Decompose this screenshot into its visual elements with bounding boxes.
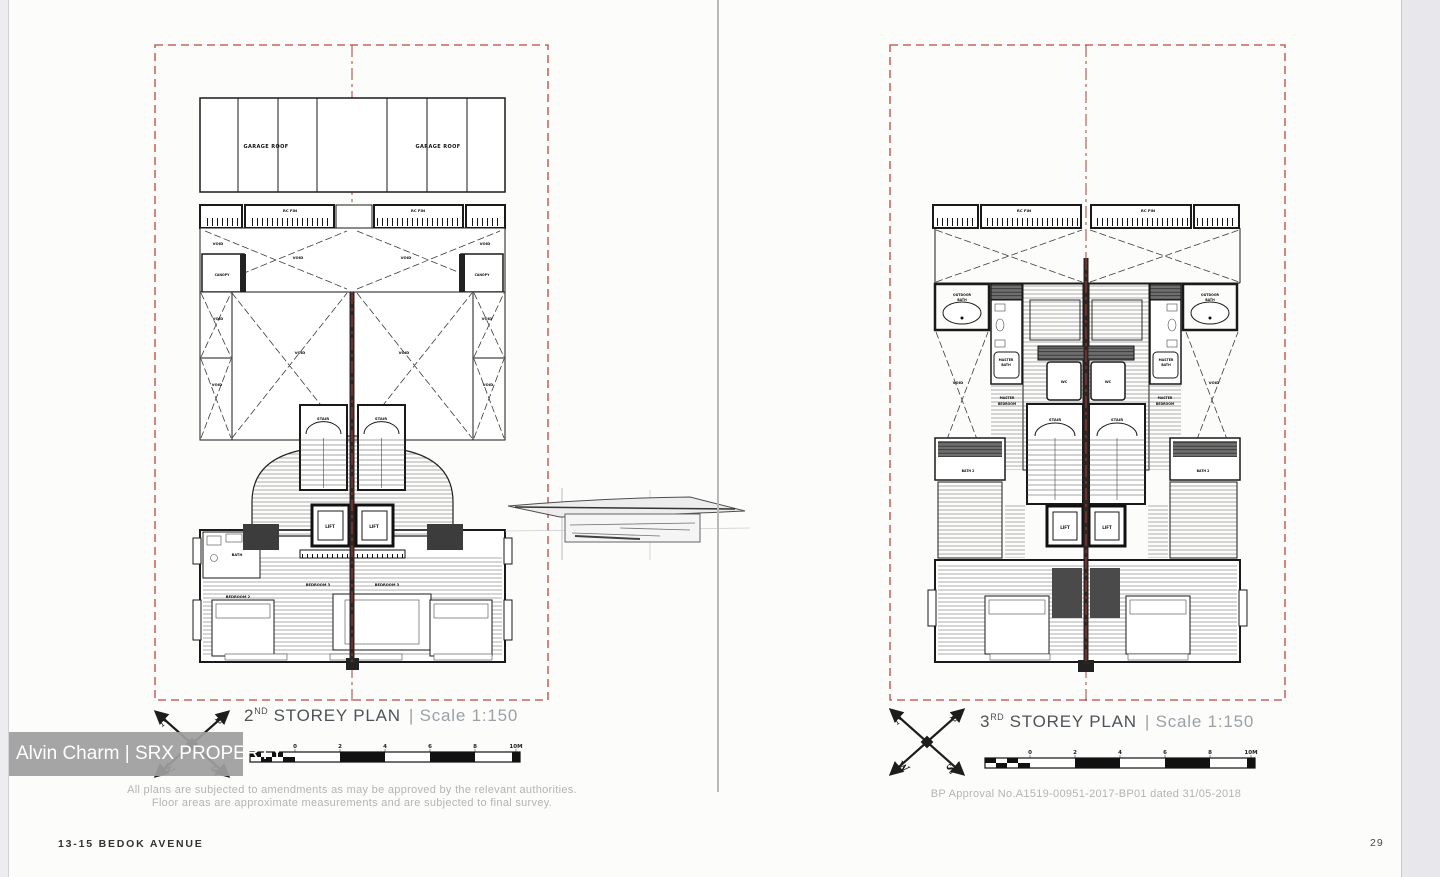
storey-number: 2 [244,706,254,725]
garage-roof-label: GARAGE ROOF [415,144,460,150]
title-separator: | [409,706,414,725]
void-label: VOID [1209,380,1220,385]
rc-fin-strip-left: RC FIN RC FIN [200,205,505,228]
page-fold-divider [717,0,719,792]
bath2-left: BATH 2 [935,438,1005,480]
stair-label: STAIR [1111,417,1123,422]
void-label: VOID [212,382,223,387]
void-label: VOID [293,255,304,260]
garage-roof-block: GARAGE ROOF GARAGE ROOF [200,98,505,192]
upper-void-band-left: VOID VOID VOID VOID CANOPY CANOPY [200,228,505,292]
page-number: 29 [1370,837,1384,849]
bedroom3-label: BEDROOM 3 [306,583,331,587]
bath2-label: BATH 2 [962,469,975,473]
wc-label: WC [1105,380,1112,384]
lift-label: LIFT [1060,525,1070,530]
master-bedroom-label: BEDROOM [998,402,1016,406]
bp-approval-note: BP Approval No.A1519-00951-2017-BP01 dat… [850,788,1322,801]
disclaimer-line2: Floor areas are approximate measurements… [112,797,592,810]
stair-right-unit-3rd: STAIR [1089,404,1145,504]
master-bath-left: MASTER BATH [991,284,1022,384]
outdoor-bath-label: BATH [1205,298,1215,302]
compass-w: W [894,757,914,777]
garage-roof-label: GARAGE ROOF [243,144,288,150]
title-scale: Scale 1:150 [420,706,519,725]
master-bath-label: BATH [1161,363,1171,367]
rc-fin-label: RC FIN [283,208,297,213]
storey-number: 3 [980,712,990,731]
master-bath-right: MASTER BATH [1150,284,1181,384]
rc-fin-label: RC FIN [1141,208,1155,213]
master-bedroom-label: MASTER [1158,396,1173,400]
lift-label: LIFT [369,524,379,529]
storey-name: STOREY PLAN [268,706,401,725]
master-bedroom-label: BEDROOM [1156,402,1174,406]
stair-label: STAIR [1049,417,1061,422]
canopy-label: CANOPY [215,273,231,277]
void-label: VOID [295,350,306,355]
stair-left-unit: STAIR [300,405,347,490]
project-address: 13-15 BEDOK AVENUE [58,838,204,850]
void-label: VOID [953,380,964,385]
left-plan-2nd-storey: GARAGE ROOF GARAGE ROOF RC FIN RC FIN [155,45,548,703]
document-page: GARAGE ROOF GARAGE ROOF RC FIN RC FIN [0,0,1440,877]
bath-label: BATH [232,553,243,557]
lift-left-unit: LIFT [312,505,349,546]
left-page-edge [0,0,9,877]
lift-right-unit-3rd: LIFT [1089,506,1125,546]
left-plan-title: 2ND STOREY PLAN| Scale 1:150 [244,706,518,726]
outdoor-bath-label: BATH [957,298,967,302]
disclaimer-note: All plans are subjected to amendments as… [112,784,592,810]
canopy-sketch-artifact [505,488,750,560]
disclaimer-line1: All plans are subjected to amendments as… [112,784,592,797]
master-bath-label: MASTER [999,358,1014,362]
storey-name: STOREY PLAN [1004,712,1137,731]
storey-ordinal: ND [254,706,268,716]
title-scale: Scale 1:150 [1156,712,1255,731]
master-bedroom-label: MASTER [1000,396,1015,400]
wardrobe-block [427,524,463,550]
void-label: VOID [213,316,224,321]
void-label: VOID [401,255,412,260]
outdoor-bath-right: OUTDOOR BATH [1183,284,1237,330]
rc-fin-label: RC FIN [411,208,425,213]
canopy-label: CANOPY [475,273,491,277]
void-label: VOID [483,382,494,387]
bath2-label: BATH 2 [1197,469,1210,473]
void-label: VOID [480,241,491,246]
bedroom2-label: BEDROOM 2 [226,595,251,599]
outdoor-bath-label: OUTDOOR [953,293,972,297]
scale-bar-left: 0 2 4 6 8 10M [250,744,523,762]
stair-right-unit: STAIR [358,405,405,490]
rc-fin-label: RC FIN [1017,208,1031,213]
compass-rose-right: N E S W [889,707,964,777]
wardrobe-block [243,524,279,550]
compass-n: N [154,711,172,730]
compass-n: N [889,709,907,728]
master-bath-label: MASTER [1159,358,1174,362]
lift-label: LIFT [1102,525,1112,530]
lift-right-unit: LIFT [356,505,393,546]
lift-label: LIFT [325,524,335,529]
lift-left-unit-3rd: LIFT [1047,506,1083,546]
void-label: VOID [482,316,493,321]
stair-label: STAIR [317,416,329,421]
right-plan-3rd-storey: RC FIN RC FIN OUTDOOR BATH OUTDOOR [890,45,1285,703]
bedroom3-label: BEDROOM 3 [375,583,400,587]
right-plan-title: 3RD STOREY PLAN| Scale 1:150 [980,712,1254,732]
outdoor-bath-label: OUTDOOR [1201,293,1220,297]
storey-ordinal: RD [990,712,1004,722]
right-page-edge [1401,0,1440,877]
master-bath-label: BATH [1001,363,1011,367]
stair-label: STAIR [375,416,387,421]
scale-bar-right: 0 2 4 6 8 10M [985,750,1258,768]
agent-watermark: Alvin Charm | SRX PROPERTY [8,732,243,776]
void-label: VOID [399,350,410,355]
stair-left-unit-3rd: STAIR [1027,404,1083,504]
outdoor-bath-left: OUTDOOR BATH [935,284,989,330]
bath2-right: BATH 2 [1170,438,1240,480]
wc-label: WC [1061,380,1068,384]
title-separator: | [1145,712,1150,731]
void-label: VOID [213,241,224,246]
